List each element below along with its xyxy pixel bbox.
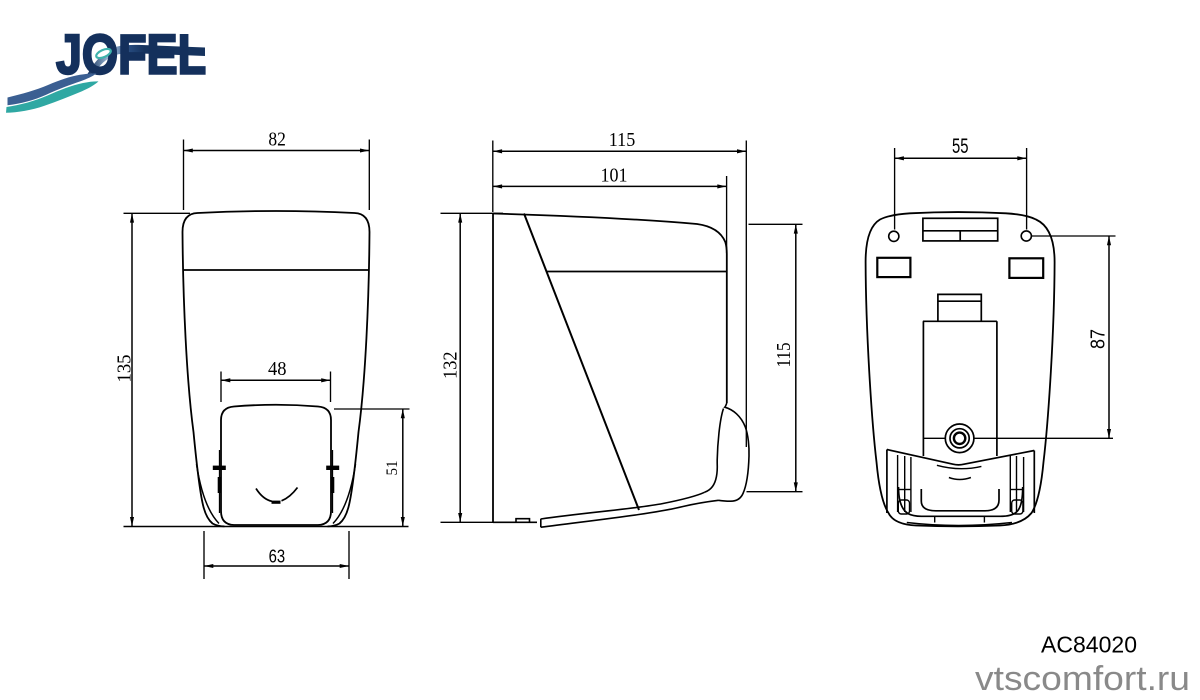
svg-text:101: 101 [601, 166, 628, 187]
svg-text:55: 55 [952, 135, 969, 158]
svg-text:115: 115 [609, 130, 636, 151]
svg-text:82: 82 [268, 129, 286, 150]
svg-text:48: 48 [268, 359, 287, 380]
svg-text:115: 115 [774, 343, 795, 368]
svg-text:63: 63 [269, 545, 286, 566]
svg-text:51: 51 [384, 461, 401, 476]
svg-text:AC84020: AC84020 [1041, 631, 1137, 657]
svg-text:135: 135 [115, 355, 136, 383]
svg-text:132: 132 [441, 351, 462, 379]
svg-text:87: 87 [1087, 329, 1109, 349]
svg-text:vtscomfort.ru: vtscomfort.ru [975, 660, 1190, 698]
